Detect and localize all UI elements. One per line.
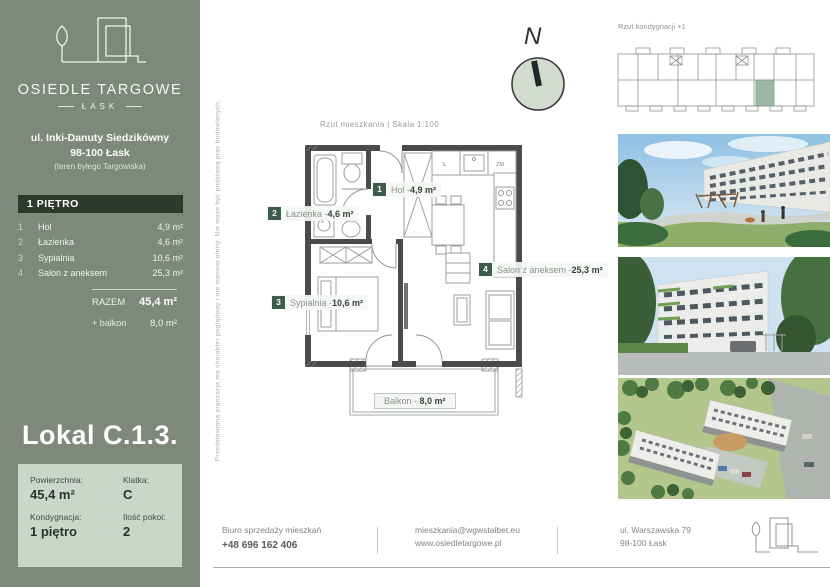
unit-title: Lokal C.1.3.: [0, 420, 200, 451]
room-row-lazienka: 2 Łazienka 4,6 m²: [18, 235, 183, 251]
room-area: 4,6 m²: [157, 237, 183, 247]
overview-plan-title: Rzut kondygnacji +1: [618, 22, 686, 31]
plan-label-hol: 1 Hol - 4,9 m²: [372, 182, 441, 197]
room-row-sypialnia: 3 Sypialnia 10,6 m²: [18, 250, 183, 266]
room-name: Salon z aneksem: [38, 268, 152, 278]
website-link[interactable]: www.osiedletargowe.pl: [415, 537, 520, 550]
plan-room-area: 25,3 m²: [572, 265, 603, 275]
compass-north-label: N: [524, 23, 542, 50]
street-address: ul. Inki-Danuty Siedzikówny: [0, 132, 200, 144]
plan-room-name: Sypialnia -: [290, 298, 332, 308]
info-value: C: [123, 487, 182, 502]
brand-subtitle: ŁASK: [0, 102, 200, 111]
balcony-value: 8,0 m²: [150, 318, 177, 329]
flyer-page: OSIEDLE TARGOWE ŁASK ul. Inki-Danuty Sie…: [0, 0, 830, 587]
total-label: RAZEM: [92, 297, 125, 308]
balcony-name: Balkon -: [384, 396, 420, 406]
dash-right: [126, 106, 142, 107]
photo-building-street-render: [618, 257, 830, 375]
city-address: 98-100 Łask: [0, 147, 200, 159]
room-no: 4: [18, 268, 38, 278]
info-pokoje: Ilość pokoi: 2: [123, 512, 182, 539]
info-klatka: Klatka: C: [123, 475, 182, 502]
brand-logo-icon: [40, 14, 160, 78]
plan-label-salon: 4 Salon z aneksem - 25,3 m²: [478, 262, 608, 277]
plan-room-area: 4,6 m²: [328, 209, 354, 219]
footer-contact: mieszkania@wgwstalbet.eu www.osiedletarg…: [415, 524, 520, 550]
room-name: Sypialnia: [38, 253, 152, 263]
room-area: 10,6 m²: [152, 253, 183, 263]
room-number-chip: 1: [373, 183, 386, 196]
plan-label-lazienka: 2 Łazienka - 4,6 m²: [267, 206, 359, 221]
photo-courtyard-render: [618, 134, 830, 247]
footer-divider: [377, 527, 378, 554]
footer-city: 98-100 Łask: [620, 537, 691, 550]
room-name: Łazienka: [38, 237, 157, 247]
info-label: Powierzchnia:: [30, 475, 123, 485]
plan-room-area: 10,6 m²: [332, 298, 363, 308]
footer-divider: [557, 527, 558, 554]
info-value: 2: [123, 524, 182, 539]
plan-room-name: Hol -: [391, 185, 410, 195]
address-note: (teren byłego Targowiska): [0, 162, 200, 171]
room-number-chip: 4: [479, 263, 492, 276]
room-no: 2: [18, 237, 38, 247]
sidebar: OSIEDLE TARGOWE ŁASK ul. Inki-Danuty Sie…: [0, 0, 200, 587]
brand-title: OSIEDLE TARGOWE: [0, 82, 200, 98]
footer-street: ul. Warszawska 79: [620, 524, 691, 537]
apartment-floorplan: P L ZM: [230, 125, 570, 430]
plan-room-name: Salon z aneksem -: [497, 265, 572, 275]
room-number-chip: 3: [272, 296, 285, 309]
info-label: Kondygnacja:: [30, 512, 123, 522]
room-row-hol: 1 Hol 4,9 m²: [18, 219, 183, 235]
room-name: Hol: [38, 222, 157, 232]
info-powierzchnia: Powierzchnia: 45,4 m²: [30, 475, 123, 502]
unit-info-box: Powierzchnia: 45,4 m² Klatka: C Kondygna…: [18, 464, 182, 567]
footer-address: ul. Warszawska 79 98-100 Łask: [620, 524, 691, 550]
balcony-area: 8,0 m²: [420, 396, 446, 406]
total-row: RAZEM 45,4 m²: [18, 296, 177, 308]
info-label: Klatka:: [123, 475, 182, 485]
phone-number[interactable]: +48 696 162 406: [222, 539, 321, 552]
info-kondygnacja: Kondygnacja: 1 piętro: [30, 512, 123, 539]
dishwasher-label: ZM: [496, 162, 504, 168]
total-value: 45,4 m²: [139, 296, 177, 308]
room-no: 1: [18, 222, 38, 232]
room-list: 1 Hol 4,9 m² 2 Łazienka 4,6 m² 3 Sypialn…: [18, 219, 183, 281]
plan-label-balkon: Balkon - 8,0 m²: [374, 393, 456, 409]
info-label: Ilość pokoi:: [123, 512, 182, 522]
brand-city: ŁASK: [82, 102, 118, 111]
plan-room-area: 4,9 m²: [410, 185, 436, 195]
email-link[interactable]: mieszkania@wgwstalbet.eu: [415, 524, 520, 537]
dash-left: [58, 106, 74, 107]
photo-aerial-render: [618, 378, 830, 499]
info-value: 1 piętro: [30, 524, 123, 539]
compass-icon: N: [498, 14, 578, 122]
plan-room-name: Łazienka -: [286, 209, 328, 219]
balcony-row: + balkon 8,0 m²: [18, 318, 177, 329]
plan-disclaimer: Przedstawiona aranżacja ma charakter pog…: [215, 95, 222, 467]
room-area: 25,3 m²: [152, 268, 183, 278]
fridge-label: L: [443, 161, 447, 168]
tv-unit: [404, 283, 408, 329]
building-overview-plan: [614, 36, 828, 120]
balcony-label: + balkon: [92, 318, 126, 329]
plan-label-sypialnia: 3 Sypialnia - 10,6 m²: [271, 295, 368, 310]
room-row-salon: 4 Salon z aneksem 25,3 m²: [18, 266, 183, 282]
highlighted-unit: [756, 80, 774, 106]
sum-divider: [92, 289, 177, 290]
room-number-chip: 2: [268, 207, 281, 220]
sales-office-label: Biuro sprzedaży mieszkań: [222, 524, 321, 537]
footer-logo-icon: [744, 514, 818, 564]
footer-rule: [213, 567, 830, 568]
footer-sales-office: Biuro sprzedaży mieszkań +48 696 162 406: [222, 524, 321, 552]
room-area: 4,9 m²: [157, 222, 183, 232]
floor-header: 1 PIĘTRO: [18, 195, 183, 213]
room-no: 3: [18, 253, 38, 263]
info-value: 45,4 m²: [30, 487, 123, 502]
